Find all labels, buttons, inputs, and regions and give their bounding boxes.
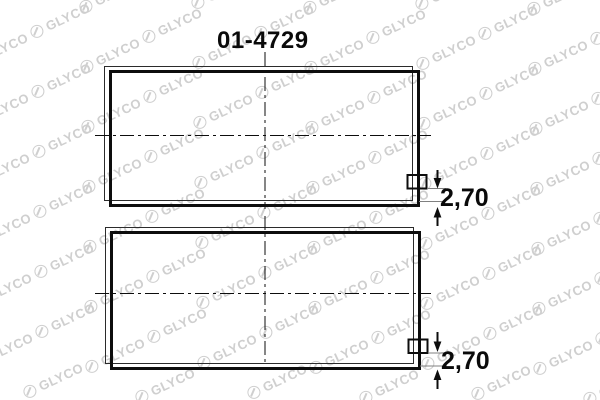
lower-wall-thickness-value: 2,70 (441, 349, 490, 374)
technical-drawing: GLYCOGLYCOGLYCOGLYCOGLYCOGLYCOGLYCOGLYCO… (0, 0, 600, 400)
bearing-drawing-canvas (0, 0, 600, 400)
part-number: 01-4729 (217, 29, 309, 53)
upper-wall-thickness-value: 2,70 (440, 186, 489, 211)
lower-locating-lug (409, 340, 428, 354)
lower-bearing-shell (95, 216, 447, 389)
upper-locating-lug (408, 175, 427, 189)
upper-back-shell-outline (105, 67, 413, 201)
lower-back-shell-outline (106, 228, 414, 364)
upper-bearing-shell (95, 52, 446, 226)
